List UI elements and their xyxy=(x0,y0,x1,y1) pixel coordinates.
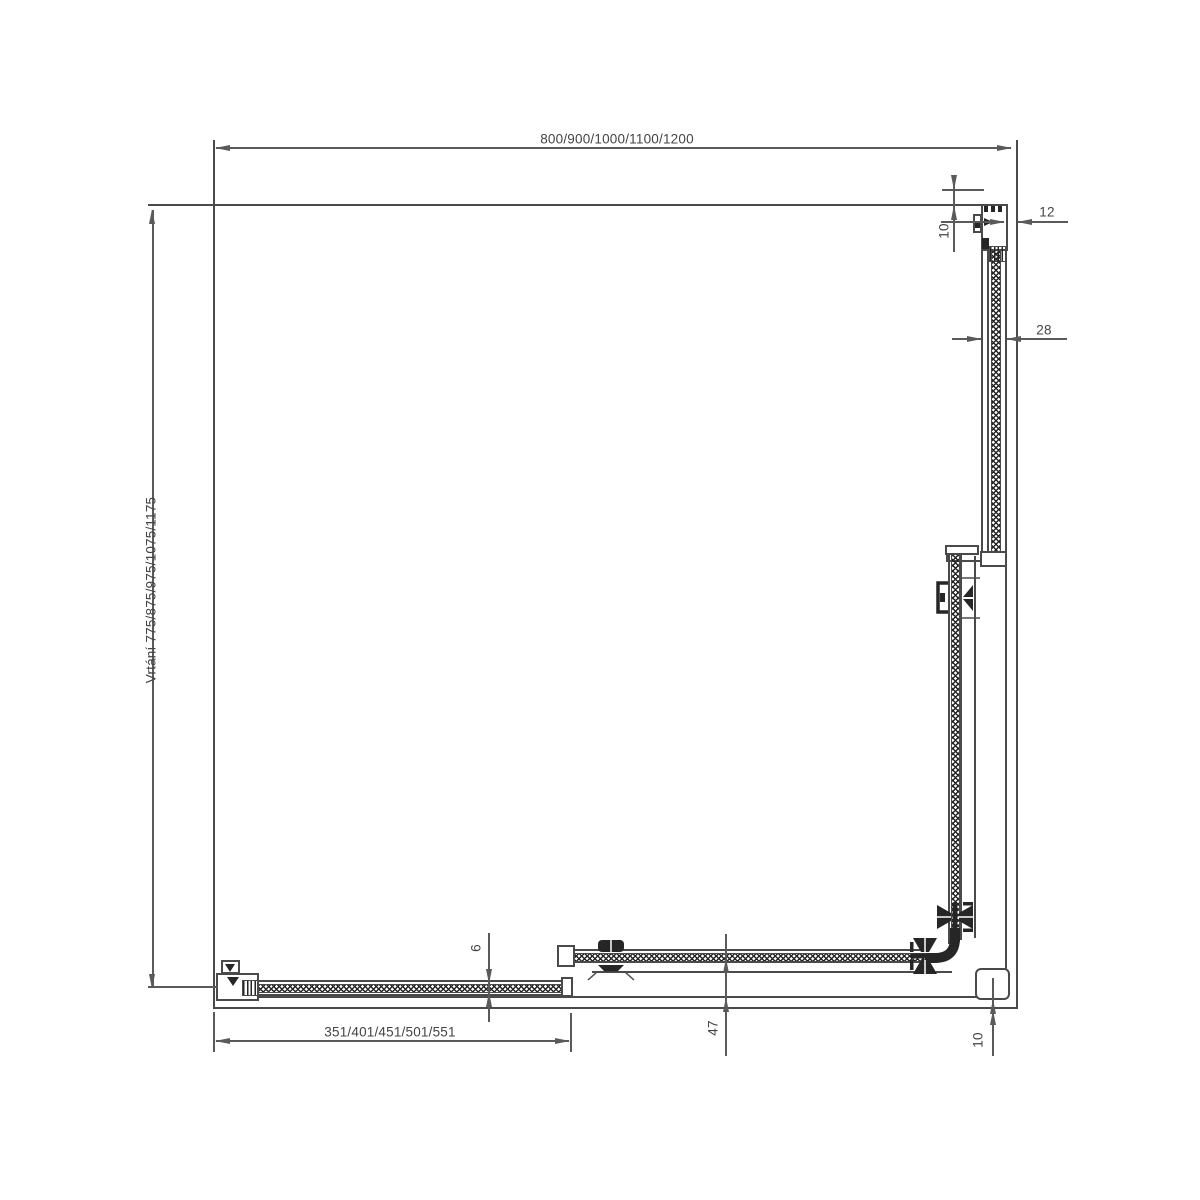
shower-enclosure-technical-drawing: 800/900/1000/1100/1200 Vrtání 775/875/97… xyxy=(0,0,1200,1200)
arrowhead xyxy=(990,1010,996,1025)
door-bottom-end-cap xyxy=(557,945,575,967)
arrowhead xyxy=(149,209,155,224)
arrowhead xyxy=(967,336,982,342)
fixed-panel-left-end-cap xyxy=(561,977,573,997)
fixed-panel-right-end-cap xyxy=(980,551,1007,567)
wall-profile-bl-clip-insert xyxy=(225,964,235,972)
clamp-wedge-lower xyxy=(963,599,973,611)
edge-right-inner xyxy=(1005,204,1007,970)
extension-line xyxy=(148,986,218,988)
fixed-panel-right-inner-line xyxy=(987,251,989,552)
dim-label-rail-offset: 47 xyxy=(706,1020,721,1035)
glass-clamp-bottom xyxy=(588,938,636,984)
dim-label-glass-thickness: 6 xyxy=(469,944,484,952)
glass-clamp-right xyxy=(932,576,982,620)
wall-profile-bl-arrow xyxy=(227,977,239,986)
clamp-wedge-icon xyxy=(598,965,624,972)
glass-seal-block-left xyxy=(242,980,258,996)
fixed-panel-right-glass xyxy=(991,251,1001,552)
dim-line-door-width xyxy=(216,1040,569,1042)
dim-label-overall-width: 800/900/1000/1100/1200 xyxy=(540,132,694,147)
edge-bottom-outer xyxy=(213,1007,1018,1009)
edge-right-outer xyxy=(1016,140,1018,1009)
fixed-panel-right-outer-line xyxy=(981,251,983,566)
edge-top xyxy=(148,204,983,206)
wall-profile-foot xyxy=(982,238,989,249)
fixed-panel-left-inner-line xyxy=(257,994,572,996)
fixed-panel-left-glass xyxy=(257,984,565,993)
arrowhead xyxy=(723,997,729,1012)
arrowhead xyxy=(1006,336,1021,342)
fixed-panel-left-outer-line xyxy=(257,980,572,982)
edge-bottom-inner xyxy=(256,996,1008,998)
arrowhead xyxy=(997,145,1012,151)
arrowhead xyxy=(215,1038,230,1044)
door-bottom-rail-line xyxy=(592,971,952,973)
dim-label-bottom-gap: 10 xyxy=(971,1032,986,1047)
dim-label-wall-gap: 12 xyxy=(1039,205,1054,220)
arrowhead xyxy=(951,175,957,190)
edge-left xyxy=(213,140,215,1009)
wall-profile-hatch xyxy=(984,206,1005,212)
dim-label-drilling-height: Vrtání 775/875/975/1075/1175 xyxy=(144,497,159,684)
arrowhead xyxy=(555,1038,570,1044)
extension-line xyxy=(570,1013,572,1052)
clamp-wedge-upper xyxy=(963,585,973,597)
dim-label-top-offset: 10 xyxy=(937,223,952,238)
arrowhead xyxy=(215,145,230,151)
dim-line-overall-width xyxy=(216,147,1011,149)
arrowhead xyxy=(486,992,492,1007)
dim-label-door-width: 351/401/451/501/551 xyxy=(324,1025,455,1040)
dim-line-rail-offset xyxy=(725,934,727,1056)
extension-line xyxy=(213,1012,215,1052)
roller-bottom xyxy=(910,936,940,976)
door-right-top-cap xyxy=(945,545,979,555)
dim-label-panel-depth: 28 xyxy=(1036,323,1051,338)
extension-line xyxy=(942,189,984,191)
clamp-bracket-icon xyxy=(588,972,634,980)
arrowhead xyxy=(723,958,729,973)
arrowhead xyxy=(990,219,1005,225)
arrowhead xyxy=(1017,219,1032,225)
arrowhead xyxy=(486,969,492,984)
arrowhead xyxy=(951,205,957,220)
